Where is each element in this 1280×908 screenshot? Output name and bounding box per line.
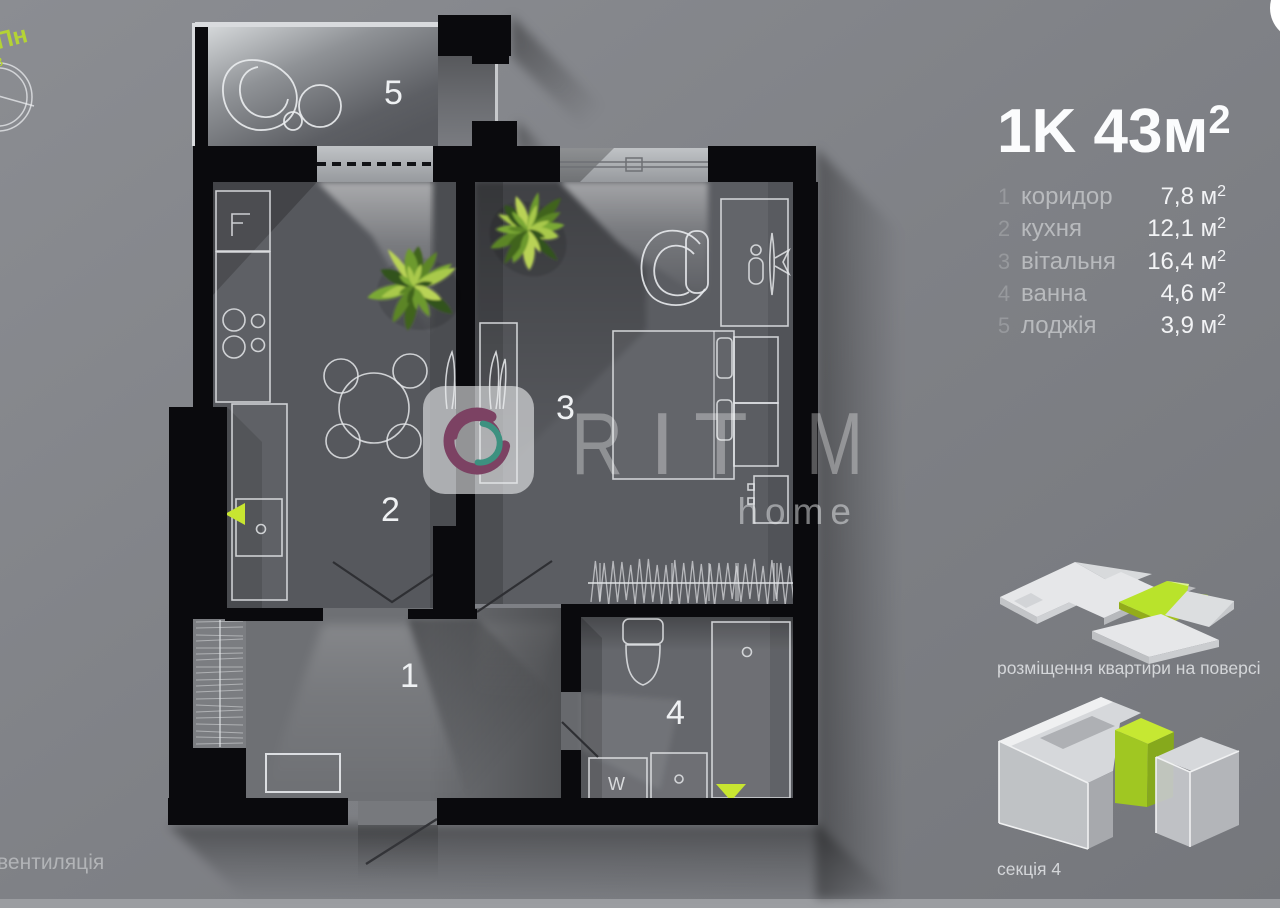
svg-text:1K 43м2: 1K 43м2	[997, 97, 1231, 166]
svg-text:лоджія: лоджія	[1021, 312, 1096, 339]
svg-text:I: I	[650, 394, 674, 493]
svg-text:1: 1	[400, 657, 419, 695]
svg-text:1: 1	[998, 184, 1010, 209]
svg-text:коридор: коридор	[1021, 183, 1113, 210]
svg-text:4: 4	[998, 281, 1010, 306]
svg-text:секція 4: секція 4	[997, 859, 1061, 879]
svg-text:T: T	[694, 394, 748, 493]
svg-text:5: 5	[384, 74, 403, 112]
svg-text:4: 4	[666, 694, 685, 732]
svg-text:M: M	[806, 395, 863, 493]
svg-text:7,8 м2: 7,8 м2	[1161, 183, 1227, 210]
svg-text:4,6 м2: 4,6 м2	[1161, 280, 1227, 307]
svg-text:5: 5	[998, 313, 1010, 338]
svg-text:кухня: кухня	[1021, 215, 1082, 242]
svg-text:home: home	[737, 491, 858, 532]
svg-text:2: 2	[381, 491, 400, 529]
svg-text:3: 3	[998, 249, 1010, 274]
svg-text:W: W	[608, 774, 625, 794]
svg-text:розміщення квартири на поверсі: розміщення квартири на поверсі	[997, 658, 1260, 678]
svg-text:ванна: ванна	[1021, 280, 1087, 307]
svg-text:12,1 м2: 12,1 м2	[1147, 215, 1226, 242]
svg-text:вентиляція: вентиляція	[0, 851, 104, 874]
svg-text:3,9 м2: 3,9 м2	[1161, 312, 1227, 339]
svg-text:вітальня: вітальня	[1021, 248, 1116, 275]
svg-text:16,4 м2: 16,4 м2	[1147, 248, 1226, 275]
svg-text:R: R	[571, 395, 623, 493]
svg-text:2: 2	[998, 216, 1010, 241]
